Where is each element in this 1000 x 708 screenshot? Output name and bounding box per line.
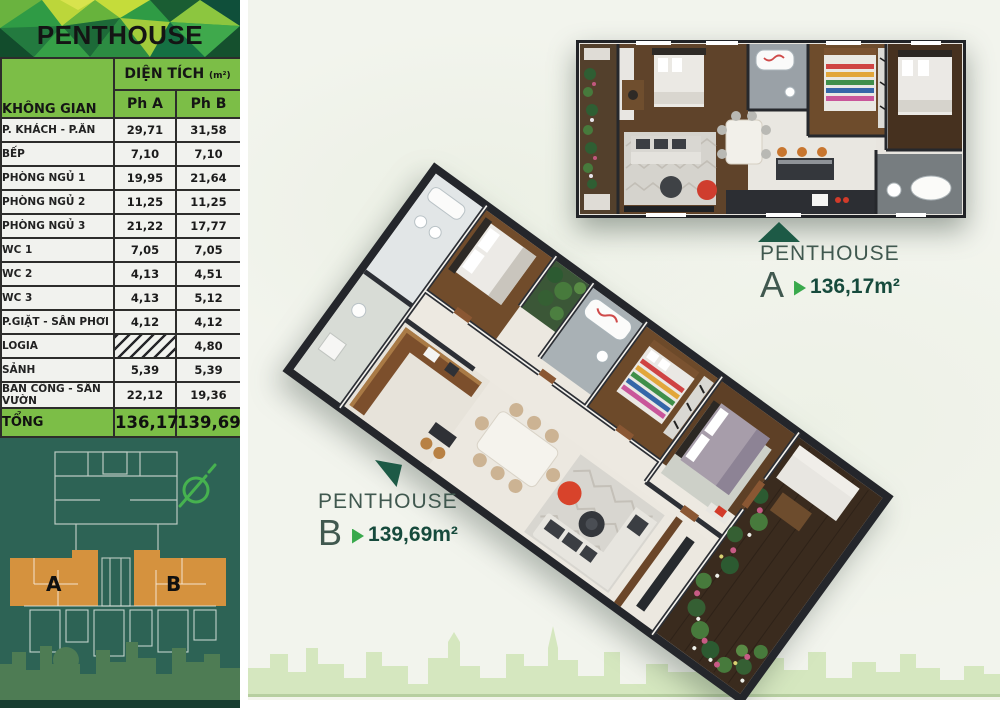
callout-a-name: PENTHOUSE [760, 242, 900, 266]
area-value-b: 31,58 [176, 118, 241, 142]
table-row: PHÒNG NGỦ 321,2217,77 [1, 214, 241, 238]
area-value-b: 4,80 [176, 334, 241, 358]
col-ph-a: Ph A [114, 90, 176, 118]
area-value-a: 21,22 [114, 214, 176, 238]
key-plan-panel: A B [0, 438, 240, 708]
room-label: LOGIA [1, 334, 114, 358]
room-label: BẾP [1, 142, 114, 166]
area-value-b: 17,77 [176, 214, 241, 238]
area-value-a: 4,13 [114, 262, 176, 286]
penthouse-a-top-plan [576, 40, 966, 218]
room-label: PHÒNG NGỦ 1 [1, 166, 114, 190]
table-row: P. KHÁCH - P.ĂN29,7131,58 [1, 118, 241, 142]
brochure-page: PENTHOUSE KHÔNG GIAN DIỆN TÍCH (m²) Ph A… [0, 0, 1000, 700]
total-b: 139,69 [176, 408, 241, 437]
divider [240, 0, 248, 700]
area-value-b: 19,36 [176, 382, 241, 408]
arrow-right-icon [352, 529, 364, 544]
area-value-a-hatched [114, 334, 176, 358]
callout-a-letter: A [760, 268, 784, 302]
area-value-a: 11,25 [114, 190, 176, 214]
area-value-b: 7,05 [176, 238, 241, 262]
room-label: P. KHÁCH - P.ĂN [1, 118, 114, 142]
room-label: SẢNH [1, 358, 114, 382]
table-row: LOGIA4,80 [1, 334, 241, 358]
table-row: P.GIẶT - SÂN PHƠI4,124,12 [1, 310, 241, 334]
key-plan: A B [0, 438, 240, 708]
table-row: WC 34,135,12 [1, 286, 241, 310]
callout-b-area: 139,69m² [368, 523, 458, 547]
area-value-b: 5,12 [176, 286, 241, 310]
area-unit: (m²) [209, 71, 231, 81]
area-value-a: 29,71 [114, 118, 176, 142]
room-label: WC 2 [1, 262, 114, 286]
col-ph-b: Ph B [176, 90, 241, 118]
total-a: 136,17 [114, 408, 176, 437]
room-label: PHÒNG NGỦ 3 [1, 214, 114, 238]
area-value-a: 19,95 [114, 166, 176, 190]
table-row: PHÒNG NGỦ 211,2511,25 [1, 190, 241, 214]
callout-a-area: 136,17m² [810, 275, 900, 299]
area-value-a: 22,12 [114, 382, 176, 408]
title-banner: PENTHOUSE [0, 0, 240, 57]
table-row: BẾP7,107,10 [1, 142, 241, 166]
area-value-a: 7,10 [114, 142, 176, 166]
area-value-a: 4,13 [114, 286, 176, 310]
total-label: TỔNG [1, 408, 114, 437]
table-row: WC 24,134,51 [1, 262, 241, 286]
area-value-b: 21,64 [176, 166, 241, 190]
callout-a: PENTHOUSE A 136,17m² [760, 242, 900, 302]
unit-b-label: B [166, 572, 181, 596]
area-value-b: 4,12 [176, 310, 241, 334]
area-header: DIỆN TÍCH (m²) [114, 58, 241, 90]
area-value-b: 4,51 [176, 262, 241, 286]
table-row: WC 17,057,05 [1, 238, 241, 262]
area-value-b: 11,25 [176, 190, 241, 214]
arrow-right-icon [794, 281, 806, 296]
area-value-a: 4,12 [114, 310, 176, 334]
area-value-a: 5,39 [114, 358, 176, 382]
room-label: P.GIẶT - SÂN PHƠI [1, 310, 114, 334]
room-label: WC 3 [1, 286, 114, 310]
area-table: KHÔNG GIAN DIỆN TÍCH (m²) Ph A Ph B P. K… [0, 57, 242, 438]
sidebar: PENTHOUSE KHÔNG GIAN DIỆN TÍCH (m²) Ph A… [0, 0, 240, 700]
area-value-a: 7,05 [114, 238, 176, 262]
callout-b-name: PENTHOUSE [318, 490, 458, 514]
unit-a-label: A [46, 572, 62, 596]
table-row: BAN CÔNG - SÂN VƯỜN22,1219,36 [1, 382, 241, 408]
area-value-b: 5,39 [176, 358, 241, 382]
main-visual-area: PENTHOUSE A 136,17m² PENTHOUSE B 139,69m… [248, 0, 1000, 700]
room-label: BAN CÔNG - SÂN VƯỜN [1, 382, 114, 408]
page-title: PENTHOUSE [0, 0, 240, 57]
callout-b-letter: B [318, 516, 342, 550]
room-label: WC 1 [1, 238, 114, 262]
table-row: SẢNH5,395,39 [1, 358, 241, 382]
space-header: KHÔNG GIAN [1, 58, 114, 118]
callout-b: PENTHOUSE B 139,69m² [318, 490, 458, 550]
table-row: PHÒNG NGỦ 119,9521,64 [1, 166, 241, 190]
total-row: TỔNG136,17139,69 [1, 408, 241, 437]
area-value-b: 7,10 [176, 142, 241, 166]
room-label: PHÒNG NGỦ 2 [1, 190, 114, 214]
